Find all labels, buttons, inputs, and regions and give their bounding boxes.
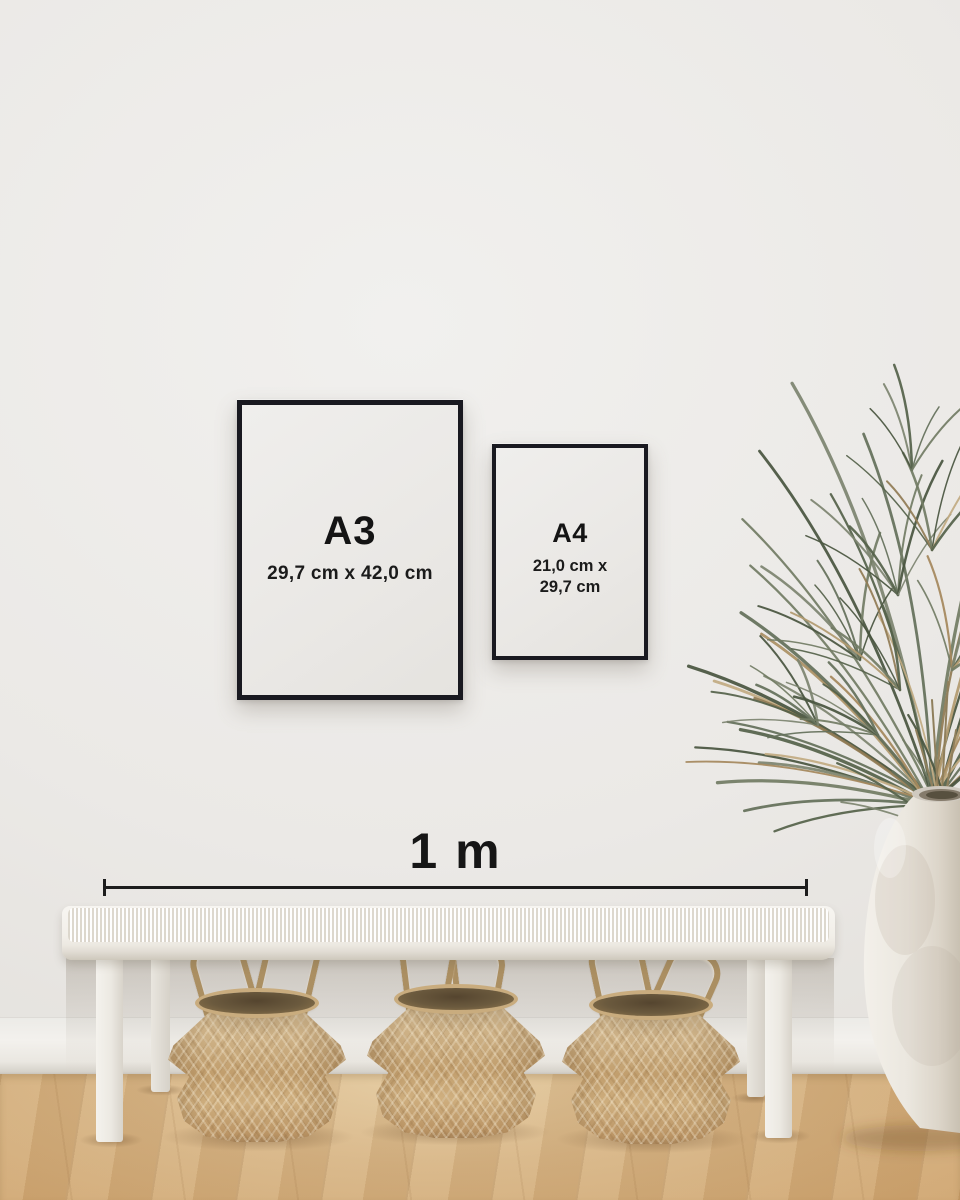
bench-seat — [62, 906, 835, 960]
palm-fronds — [686, 365, 960, 840]
seagrass-basket-1 — [168, 990, 346, 1142]
a3-size-label: A3 — [323, 511, 376, 551]
a3-size-frame: A3 29,7 cm x 42,0 cm — [237, 400, 463, 700]
scale-bar-line — [103, 886, 808, 889]
palm-plant-and-vase — [560, 300, 960, 1200]
scale-bar-right-tick — [805, 879, 808, 896]
scale-bar-label: 1 m — [103, 822, 808, 880]
a3-dimensions-label: 29,7 cm x 42,0 cm — [267, 563, 433, 585]
scale-bar — [103, 879, 808, 896]
vase-highlight — [874, 818, 906, 878]
bench-seat-edge — [62, 945, 835, 960]
basket-body — [367, 996, 545, 1138]
scale-bar-left-tick — [103, 879, 106, 896]
bench-front-left-leg — [96, 952, 123, 1142]
basket-rim — [398, 988, 514, 1010]
room-scene: A3 29,7 cm x 42,0 cm A4 21,0 cm x 29,7 c… — [0, 0, 960, 1200]
bench-weave-texture — [68, 908, 829, 942]
seagrass-basket-2 — [367, 986, 545, 1138]
basket-rim — [199, 992, 315, 1014]
vase-mouth — [926, 791, 958, 799]
basket-body — [168, 1000, 346, 1142]
